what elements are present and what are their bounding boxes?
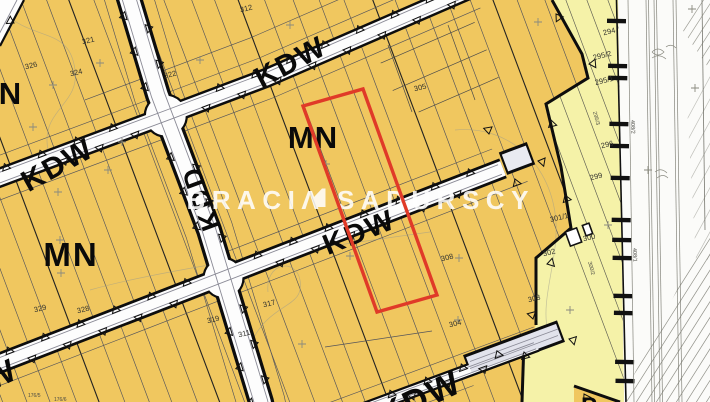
svg-text:P: P: [581, 393, 597, 402]
svg-text:408/1: 408/1: [631, 248, 637, 262]
svg-text:408/2: 408/2: [629, 120, 635, 134]
svg-text:176/5: 176/5: [28, 393, 41, 399]
svg-text:BRACIΛ: BRACIΛ: [187, 185, 326, 215]
svg-text:MN: MN: [43, 236, 98, 273]
svg-text:176/6: 176/6: [54, 397, 67, 402]
svg-text:MN: MN: [0, 76, 23, 111]
svg-text:SADURSCY: SADURSCY: [337, 185, 535, 215]
